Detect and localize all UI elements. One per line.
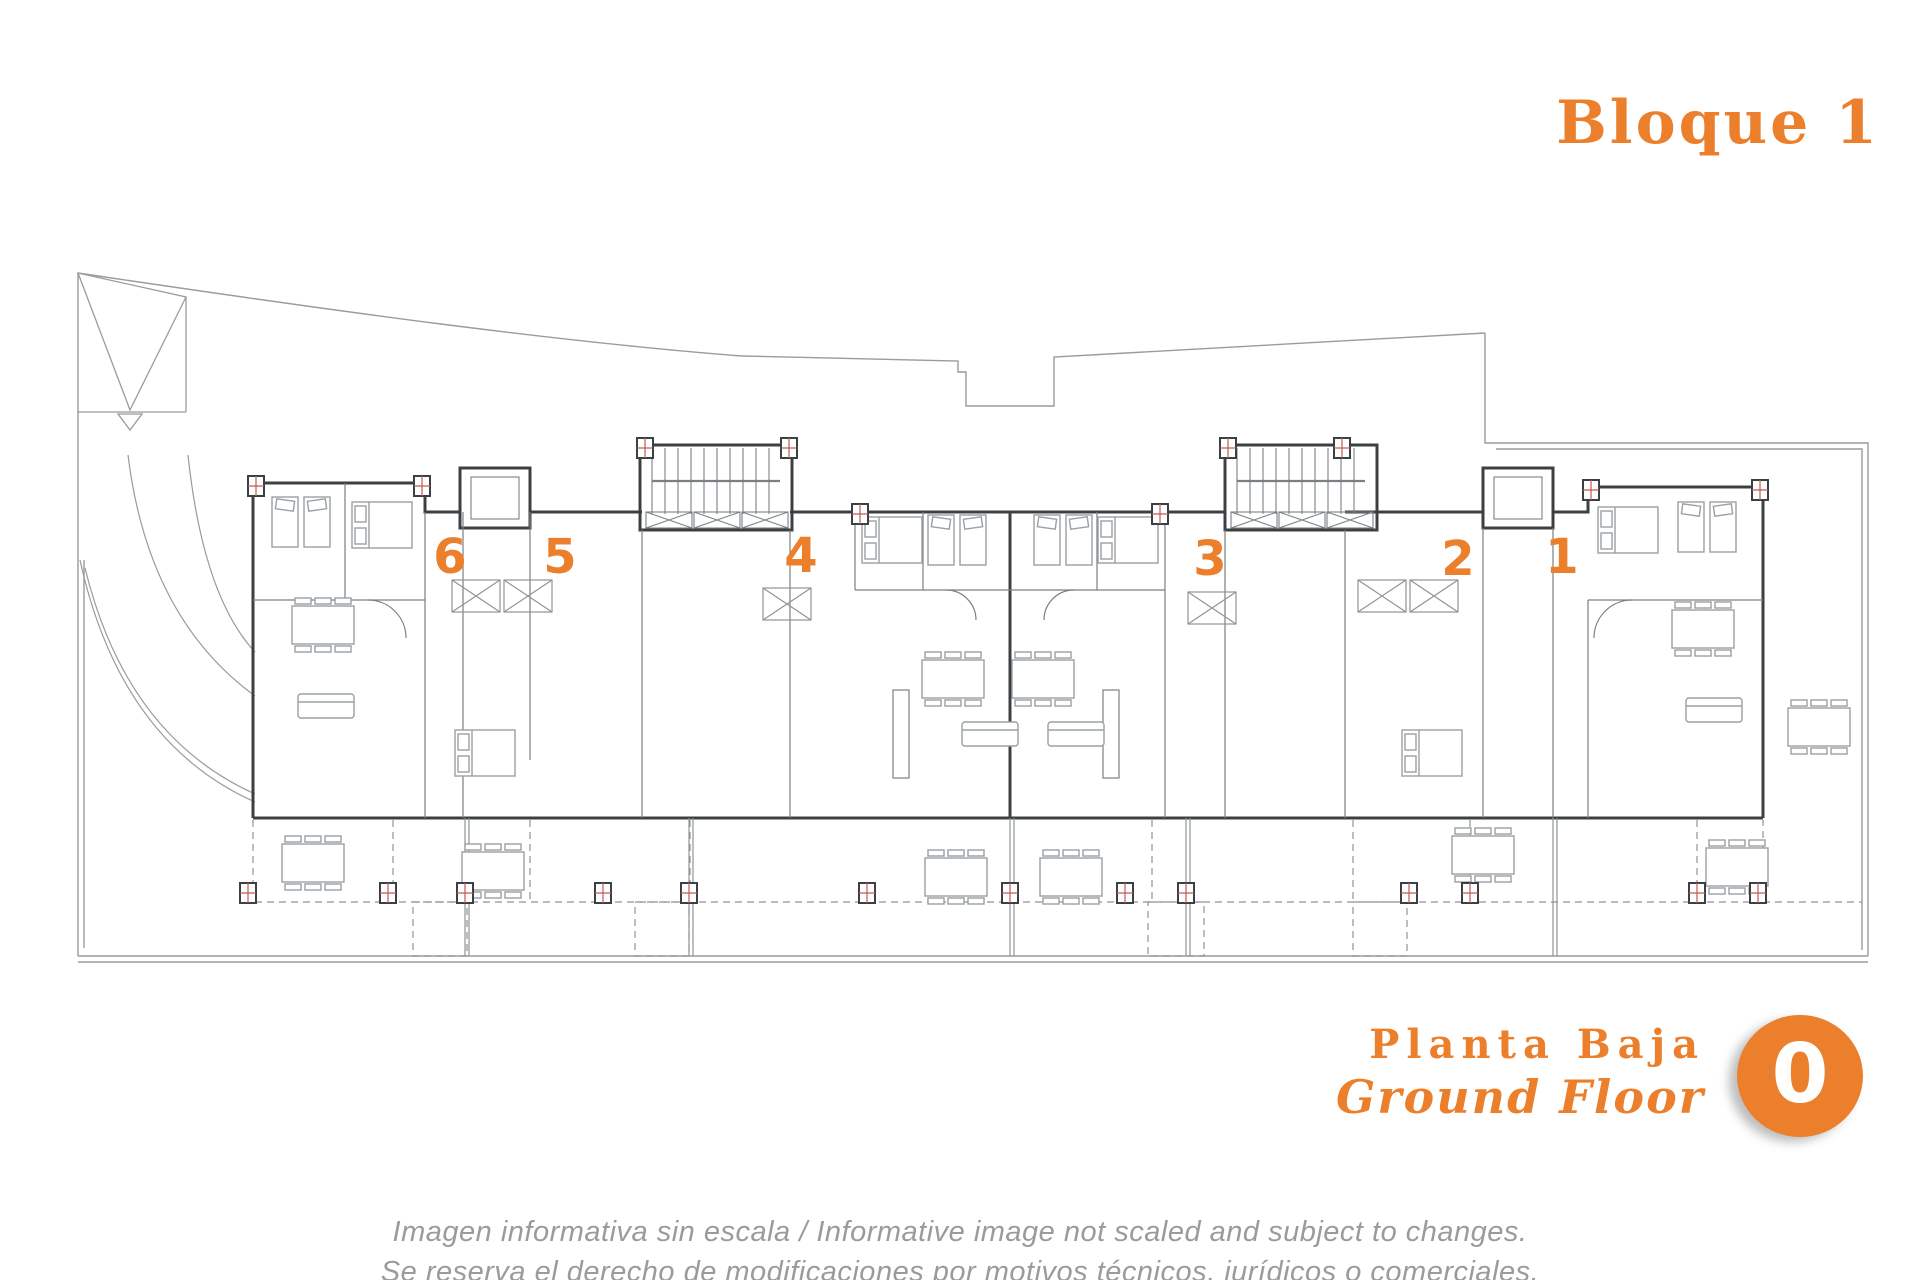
twin-beds-icon: [272, 497, 330, 547]
unit-number-2: 2: [1441, 531, 1474, 587]
unit-number-5: 5: [543, 529, 576, 585]
double-bed-icon: [455, 730, 515, 776]
floor-plan-page: Bloque 1: [0, 0, 1920, 1280]
terrace-table-icon: [282, 836, 344, 890]
sofa-icon: [962, 722, 1018, 746]
dining-table-icon: [292, 598, 354, 652]
shower-icon: [763, 588, 811, 620]
twin-beds-icon: [928, 515, 986, 565]
double-bed-icon: [1402, 730, 1462, 776]
disclaimer-line-1: Imagen informativa sin escala / Informat…: [0, 1212, 1920, 1252]
terrace-table-icon: [1040, 850, 1102, 904]
floor-legend: Planta Baja Ground Floor: [1336, 1020, 1705, 1125]
ramp-symbol: [78, 273, 186, 430]
dining-table-icon: [1672, 602, 1734, 656]
floor-name-es: Planta Baja: [1336, 1020, 1705, 1070]
unit-number-1: 1: [1545, 529, 1578, 585]
floor-number-badge: 0: [1737, 1015, 1863, 1137]
access-road-curves: [80, 455, 255, 802]
disclaimer-line-2: Se reserva el derecho de modificaciones …: [0, 1252, 1920, 1280]
disclaimer: Imagen informativa sin escala / Informat…: [0, 1212, 1920, 1280]
terrace-table-icon: [1788, 700, 1850, 754]
double-bed-icon: [352, 502, 412, 548]
unit-number-4: 4: [784, 528, 817, 584]
floor-name-en: Ground Floor: [1336, 1070, 1705, 1125]
double-bed-icon: [862, 517, 922, 563]
unit-number-6: 6: [433, 529, 466, 585]
dining-table-icon: [1012, 652, 1074, 706]
double-bed-icon: [1598, 507, 1658, 553]
shower-icon: [1188, 592, 1236, 624]
double-bed-icon: [1098, 517, 1158, 563]
furniture: [272, 497, 1742, 776]
floor-number: 0: [1771, 1027, 1828, 1122]
terrace-table-icon: [1452, 828, 1514, 882]
dining-table-icon: [922, 652, 984, 706]
sofa-icon: [1048, 722, 1104, 746]
twin-beds-icon: [1034, 515, 1092, 565]
stair-treads: [471, 448, 1542, 528]
sofa-icon: [1686, 698, 1742, 722]
terrace-table-icon: [925, 850, 987, 904]
unit-number-3: 3: [1193, 531, 1226, 587]
twin-beds-icon: [1678, 502, 1736, 552]
shower-icon: [1358, 580, 1406, 612]
sofa-icon: [298, 694, 354, 718]
